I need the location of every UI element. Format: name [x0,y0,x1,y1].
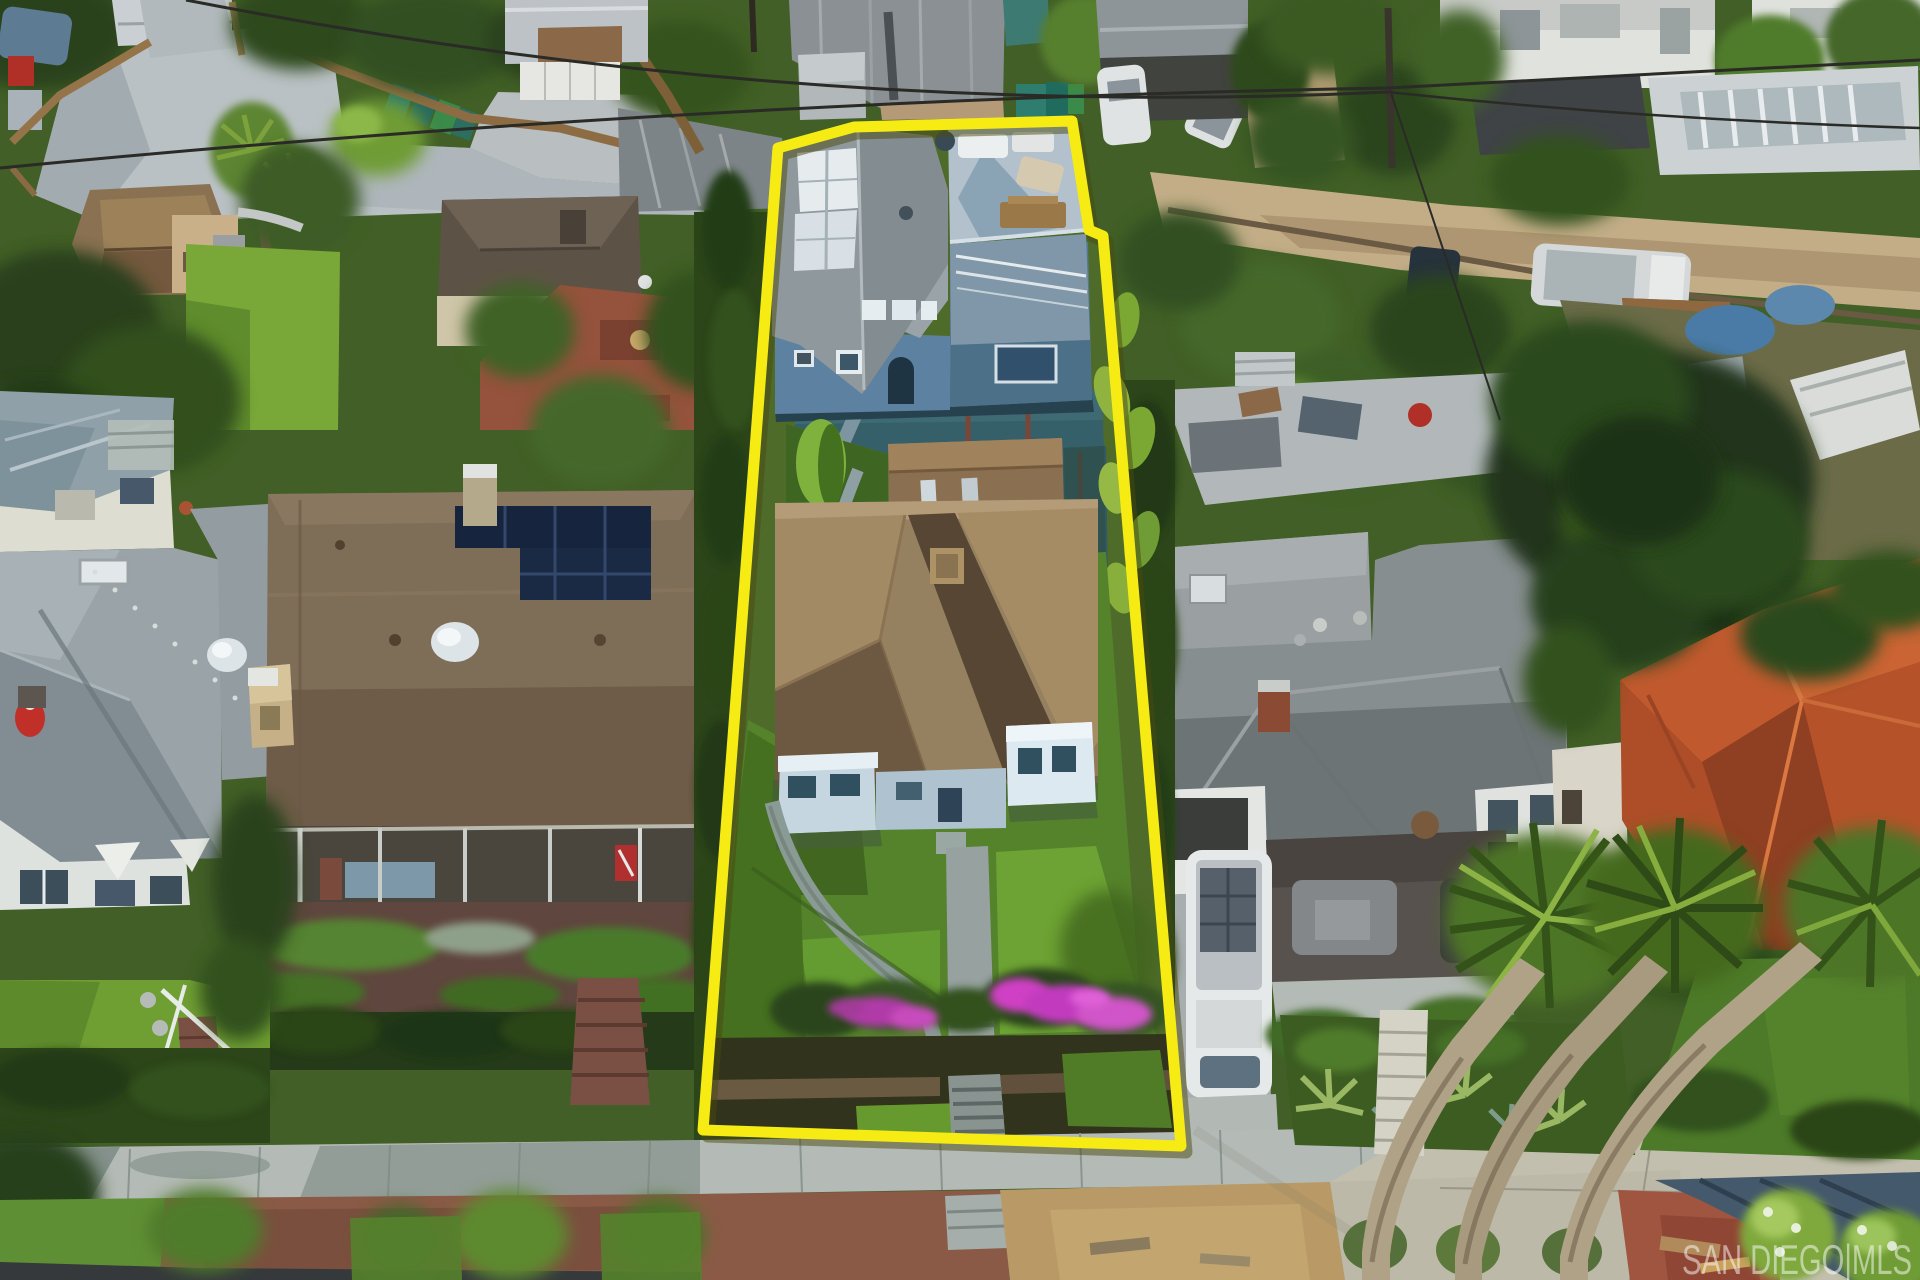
svg-text:SAN DIEGO|MLS: SAN DIEGO|MLS [1682,1236,1912,1280]
